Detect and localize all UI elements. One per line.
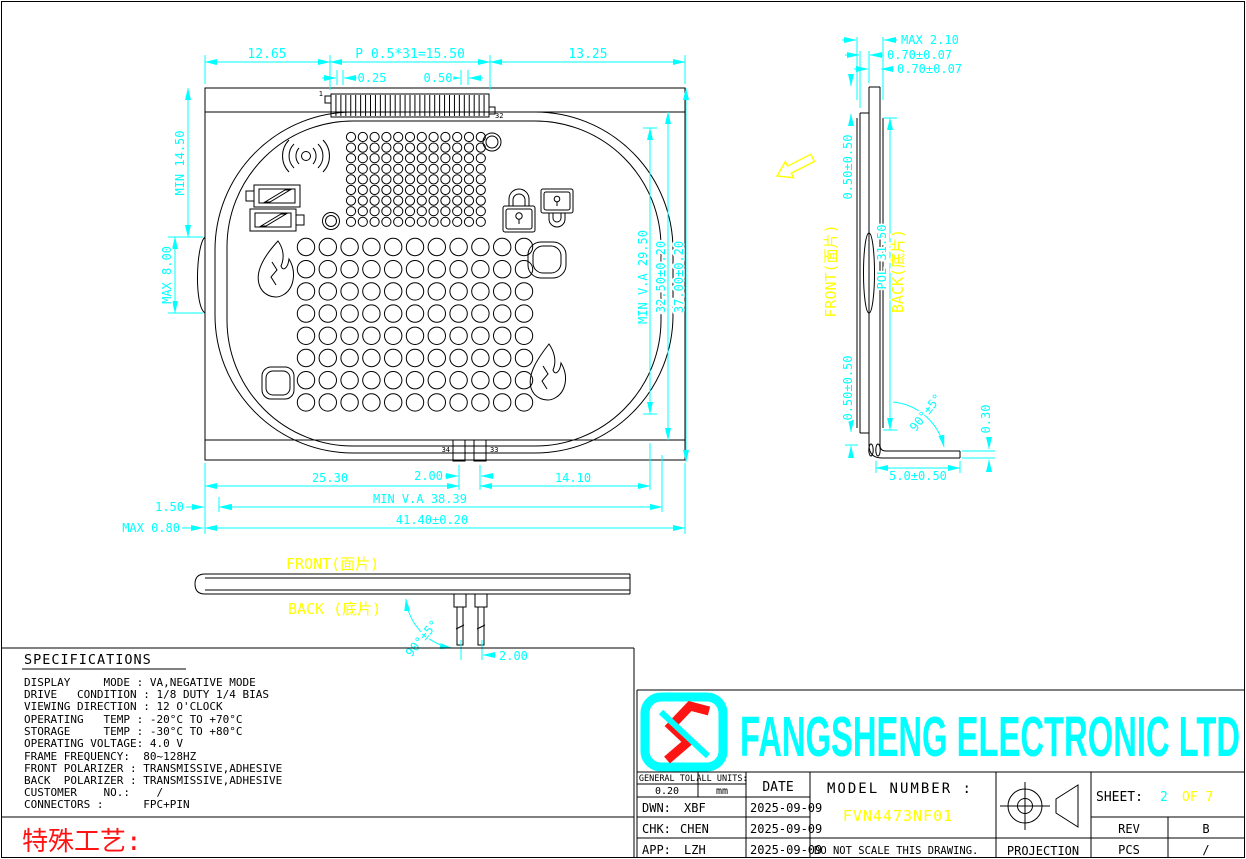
bottom-pins — [453, 440, 486, 461]
projection-symbol-icon — [1000, 782, 1078, 830]
dim-max-0-80: MAX 0.80 — [122, 521, 180, 535]
view-direction-arrow-icon — [773, 150, 817, 184]
lock-closed-icon — [503, 189, 535, 232]
pcs-label: PCS — [1118, 843, 1140, 857]
sheet-number: 2 — [1160, 790, 1168, 805]
side-view: MAX 2.10 0.70±0.07 0.70±0.07 0.50±0.50 F… — [773, 33, 995, 483]
bottom-view: FRONT(面片) BACK (底片) 90°±5° 2.00 — [195, 555, 630, 663]
model-number-value: FVN4473NF01 — [843, 807, 953, 825]
spec-line: VIEWING DIRECTION : 12 O'CLOCK — [24, 700, 223, 713]
company-name: FANGSHENG ELECTRONIC LTD — [740, 705, 1240, 769]
left-bump — [197, 237, 205, 313]
rounded-blob-segment — [528, 242, 566, 278]
dim-25-30: 25.30 — [312, 471, 348, 485]
dwn-label: DWN: — [642, 801, 671, 815]
dot-matrix-large — [297, 238, 532, 411]
do-not-scale-warning: DO NOT SCALE THIS DRAWING. — [814, 845, 978, 857]
dim-max-8-00: MAX 8.00 — [160, 246, 174, 304]
general-tol-value: 0.20 — [655, 786, 679, 797]
app-name: LZH — [684, 843, 706, 857]
dim-va-height: MIN V.A 29.50 — [636, 230, 650, 324]
date-header: DATE — [762, 780, 793, 795]
lock-open-icon — [541, 189, 573, 227]
dim-pin-pitch: 2.00 — [499, 649, 528, 663]
units-value: mm — [716, 786, 728, 797]
chk-name: CHEN — [680, 822, 709, 836]
pin-33-label: 33 — [490, 446, 498, 454]
dim-0-50-bottom: 0.50±0.50 — [841, 355, 855, 420]
pcs-value: / — [1202, 843, 1209, 857]
bottom-back-label: BACK (底片) — [288, 600, 381, 618]
specifications-box: SPECIFICATIONS DISPLAY MODE : VA,NEGATIV… — [2, 648, 634, 857]
dwn-name: XBF — [684, 801, 706, 815]
units-label: ALL UNITS: — [696, 774, 747, 784]
dim-pol: POL 31.50 — [875, 224, 889, 289]
spec-line: CONNECTORS : FPC+PIN — [24, 798, 190, 811]
flame-icon — [530, 344, 565, 400]
dot-matrix-small — [346, 132, 485, 226]
spec-line: OPERATING VOLTAGE: 4.0 V — [24, 737, 183, 750]
title-block: FANGSHENG ELECTRONIC LTD GENERAL TOL 0.2… — [637, 690, 1244, 858]
company-logo-icon — [645, 697, 723, 767]
front-view: 1 32 — [122, 47, 686, 535]
battery-icon — [250, 209, 304, 231]
dim-0-50: 0.50 — [424, 71, 453, 85]
special-process-label: 特殊工艺: — [22, 827, 142, 857]
front-view-outline — [197, 88, 685, 460]
sheet-label: SHEET: — [1096, 790, 1143, 805]
dim-13-25: 13.25 — [568, 47, 607, 62]
dim-14-10: 14.10 — [555, 471, 591, 485]
general-tol-label: GENERAL TOL — [639, 774, 695, 784]
model-number-label: MODEL NUMBER : — [827, 781, 973, 797]
dim-5-0: 5.0±0.50 — [889, 469, 947, 483]
dim-glass-height: 32.50±0.20 — [654, 241, 668, 313]
sheet-of: OF 7 — [1182, 790, 1213, 805]
dim-0-70-front: 0.70±0.07 — [887, 48, 952, 62]
dim-0-50-top: 0.50±0.50 — [841, 134, 855, 199]
pin-34-label: 34 — [442, 446, 450, 454]
flame-icon — [258, 241, 293, 297]
side-front-label: FRONT(面片) — [822, 224, 840, 317]
pin-32-label: 32 — [495, 112, 503, 120]
dim-2-00: 2.00 — [414, 469, 443, 483]
signal-icon — [283, 140, 330, 172]
dim-max-2-10: MAX 2.10 — [901, 33, 959, 47]
bottom-front-label: FRONT(面片) — [286, 555, 379, 573]
rev-value: B — [1202, 822, 1209, 836]
dwn-date: 2025-09-09 — [750, 801, 822, 815]
dim-bend-angle-bottom: 90°±5° — [403, 617, 442, 659]
app-label: APP: — [642, 843, 671, 857]
dim-va-width: MIN V.A 38.39 — [373, 492, 467, 506]
fpc-connector — [325, 94, 495, 117]
projection-label: PROJECTION — [1007, 844, 1079, 858]
drawing-sheet: 1 32 — [0, 0, 1246, 859]
battery-icon — [246, 185, 300, 207]
chk-date: 2025-09-09 — [750, 822, 822, 836]
drawing-canvas: 1 32 — [0, 0, 1246, 859]
dim-pitch: P 0.5*31=15.50 — [355, 47, 465, 62]
side-back-label: BACK(底片) — [889, 229, 907, 313]
rev-label: REV — [1118, 822, 1140, 836]
bottom-view-profile — [195, 574, 630, 645]
dim-1-50: 1.50 — [155, 500, 184, 514]
dim-total-width: 41.40±0.20 — [396, 513, 468, 527]
spec-title: SPECIFICATIONS — [24, 652, 152, 668]
dim-bend-angle-side: 90°±5° — [907, 391, 945, 434]
dim-12-65: 12.65 — [247, 47, 286, 62]
dim-0-25: 0.25 — [358, 71, 387, 85]
side-dimensions — [842, 37, 995, 473]
dim-total-height: 37.00±0.20 — [672, 241, 686, 313]
dim-0-30: 0.30 — [979, 405, 993, 434]
rounded-square-segment — [262, 367, 294, 399]
dim-min-14-50: MIN 14.50 — [173, 130, 187, 195]
pin-1-label: 1 — [319, 90, 323, 98]
side-view-profile — [857, 87, 960, 458]
front-dimensions — [168, 55, 686, 534]
chk-label: CHK: — [642, 822, 671, 836]
app-date: 2025-09-09 — [750, 843, 822, 857]
dim-0-70-back: 0.70±0.07 — [897, 62, 962, 76]
